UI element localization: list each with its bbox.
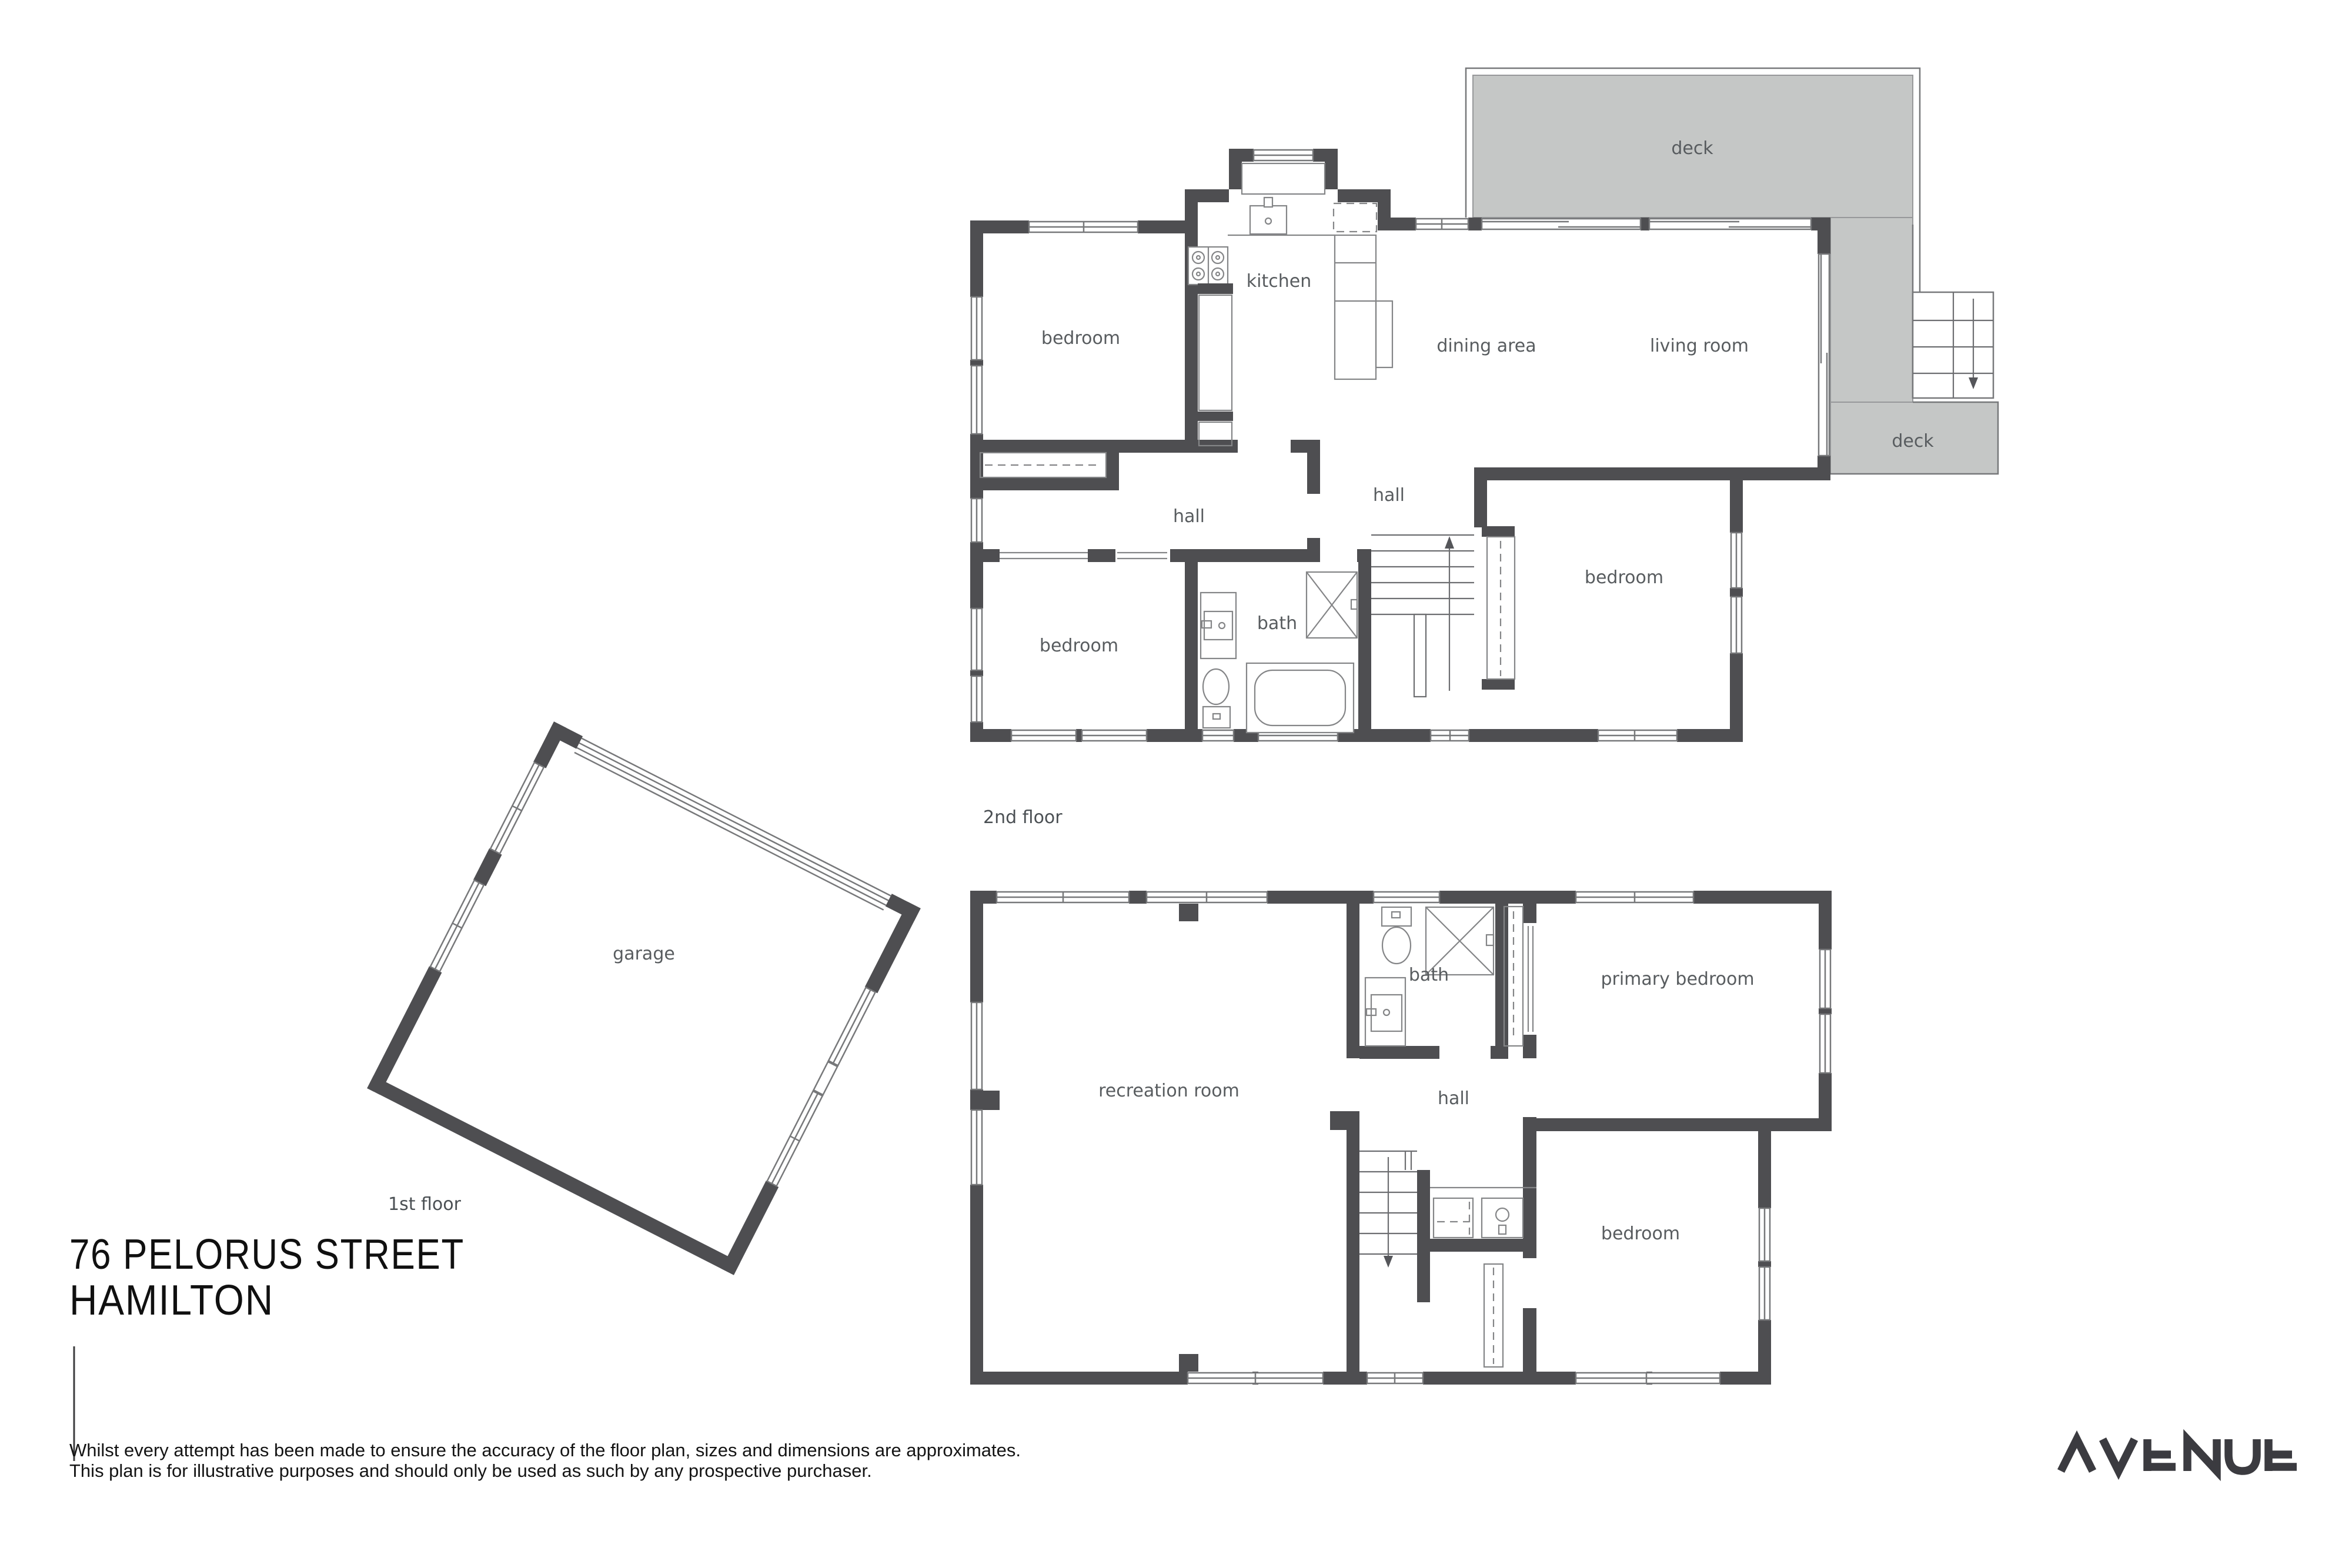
room-label-bedroom-bottom-left: bedroom bbox=[1040, 636, 1118, 656]
first-floor-windows bbox=[971, 892, 1830, 1383]
room-label-recreation: recreation room bbox=[1098, 1081, 1240, 1101]
second-floor-stairs bbox=[1371, 535, 1474, 697]
room-label-kitchen: kitchen bbox=[1247, 271, 1311, 292]
hall-closet bbox=[1484, 1264, 1503, 1367]
bath-vanity bbox=[1201, 593, 1236, 658]
property-title-line2: HAMILTON bbox=[69, 1277, 274, 1324]
disclaimer-line1: Whilst every attempt has been made to en… bbox=[69, 1440, 1021, 1460]
kitchen-sink bbox=[1250, 198, 1287, 234]
room-label-hall-right: hall bbox=[1373, 485, 1405, 506]
fridge-space bbox=[1334, 203, 1377, 232]
kitchen-counter bbox=[1228, 235, 1392, 379]
deck-stairs bbox=[1913, 292, 1993, 398]
wardrobe bbox=[980, 453, 1106, 477]
room-label-dining: dining area bbox=[1436, 336, 1536, 356]
room-label-hall-left: hall bbox=[1173, 506, 1205, 527]
room-label-deck-top: deck bbox=[1671, 138, 1713, 159]
vanity-1f bbox=[1365, 978, 1405, 1046]
floor-label-1st: 1st floor bbox=[388, 1194, 462, 1215]
room-label-bath-2f: bath bbox=[1257, 613, 1297, 634]
garage-door bbox=[574, 738, 891, 910]
room-label-living: living room bbox=[1650, 336, 1749, 356]
avenue-logo: AVENUE bbox=[2061, 1439, 2297, 1471]
deck-side-strip bbox=[1830, 218, 1913, 402]
room-label-bedroom-1f: bedroom bbox=[1601, 1223, 1680, 1244]
primary-closet bbox=[1504, 907, 1533, 1046]
kitchen-pantry bbox=[1198, 283, 1233, 446]
toilet bbox=[1203, 669, 1230, 728]
room-label-deck-side: deck bbox=[1892, 431, 1934, 452]
bedroom-closet bbox=[1487, 537, 1515, 679]
room-label-bedroom-top-left: bedroom bbox=[1041, 328, 1120, 349]
floor-plan-page: bedroom kitchen dining area living room … bbox=[0, 0, 2352, 1568]
bathtub bbox=[1247, 663, 1354, 733]
room-label-garage: garage bbox=[613, 944, 675, 964]
bay-window-seat bbox=[1242, 163, 1325, 194]
room-label-hall-1f: hall bbox=[1438, 1088, 1469, 1109]
shower bbox=[1307, 572, 1357, 638]
bedroom-door bbox=[1117, 553, 1167, 559]
disclaimer-line2: This plan is for illustrative purposes a… bbox=[69, 1460, 872, 1481]
stove bbox=[1188, 247, 1228, 285]
first-floor-stairs bbox=[1359, 1151, 1417, 1268]
first-floor-walls bbox=[970, 891, 1832, 1385]
floor-label-2nd: 2nd floor bbox=[983, 807, 1063, 828]
closet-slider bbox=[1000, 553, 1088, 559]
room-label-bath-1f: bath bbox=[1409, 965, 1449, 985]
laundry bbox=[1430, 1188, 1536, 1238]
toilet-1f bbox=[1382, 907, 1411, 964]
room-label-bedroom-bottom-right: bedroom bbox=[1585, 567, 1663, 588]
property-title-line1: 76 PELORUS STREET bbox=[69, 1231, 465, 1278]
room-label-primary-bedroom: primary bedroom bbox=[1601, 969, 1754, 989]
floor-plan-canvas: bedroom kitchen dining area living room … bbox=[0, 0, 2352, 1568]
second-floor-decks bbox=[1466, 68, 1998, 474]
garage-structure bbox=[367, 721, 920, 1275]
